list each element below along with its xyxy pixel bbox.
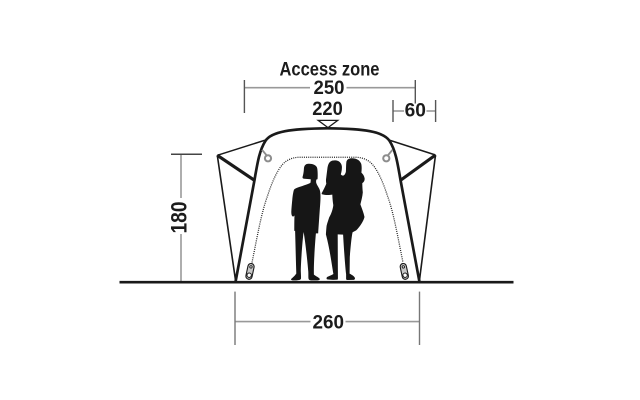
- svg-text:250: 250: [314, 77, 345, 99]
- svg-text:60: 60: [405, 100, 426, 122]
- svg-text:180: 180: [167, 202, 192, 234]
- svg-text:220: 220: [312, 98, 343, 120]
- svg-text:260: 260: [313, 312, 345, 334]
